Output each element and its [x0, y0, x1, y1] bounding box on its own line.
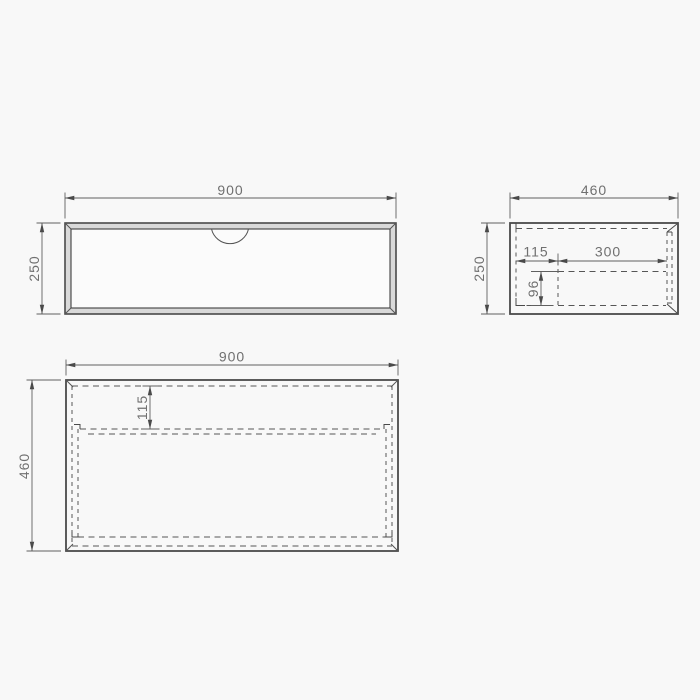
plan-outline: [66, 380, 398, 551]
side-inner-height-dimension: 96: [525, 272, 559, 306]
plan-view: 900 460 115: [16, 349, 398, 552]
plan-width-dimension: 900: [66, 349, 398, 376]
side-height-dimension: 250: [471, 223, 505, 314]
plan-inner-offset-dimension: 115: [134, 386, 159, 429]
plan-depth-dimension: 460: [16, 380, 61, 551]
side-outline: [510, 223, 678, 314]
front-height-label: 250: [26, 255, 42, 281]
side-width-dimension: 460: [510, 182, 678, 219]
plan-inner-offset-label: 115: [134, 395, 150, 420]
side-inner-width-dimension: 300: [558, 244, 667, 262]
plan-hidden-horizontals: [72, 386, 392, 546]
plan-width-label: 900: [219, 349, 245, 365]
front-view: 900 250: [26, 182, 396, 314]
side-inner-offset-dimension: 115: [516, 244, 558, 266]
plan-depth-label: 460: [16, 453, 32, 479]
side-panel-hooks: [516, 223, 677, 313]
cabinet-technical-drawing: 900 250 460 250 115: [0, 0, 700, 700]
plan-panel-hooks: [72, 425, 392, 538]
side-view: 460 250 115 300 96: [471, 182, 678, 314]
side-width-label: 460: [581, 182, 607, 198]
technical-drawing-canvas: 900 250 460 250 115: [0, 0, 700, 700]
front-height-dimension: 250: [26, 223, 61, 314]
plan-hidden-verticals: [72, 386, 392, 546]
side-inner-height-label: 96: [525, 280, 541, 298]
side-inner-width-label: 300: [595, 244, 621, 260]
front-width-label: 900: [217, 182, 243, 198]
side-inner-offset-label: 115: [523, 244, 548, 260]
front-drawer-panel: [71, 229, 390, 308]
side-height-label: 250: [471, 255, 487, 281]
plan-corner-chamfers: [66, 380, 398, 551]
front-width-dimension: 900: [65, 182, 396, 219]
